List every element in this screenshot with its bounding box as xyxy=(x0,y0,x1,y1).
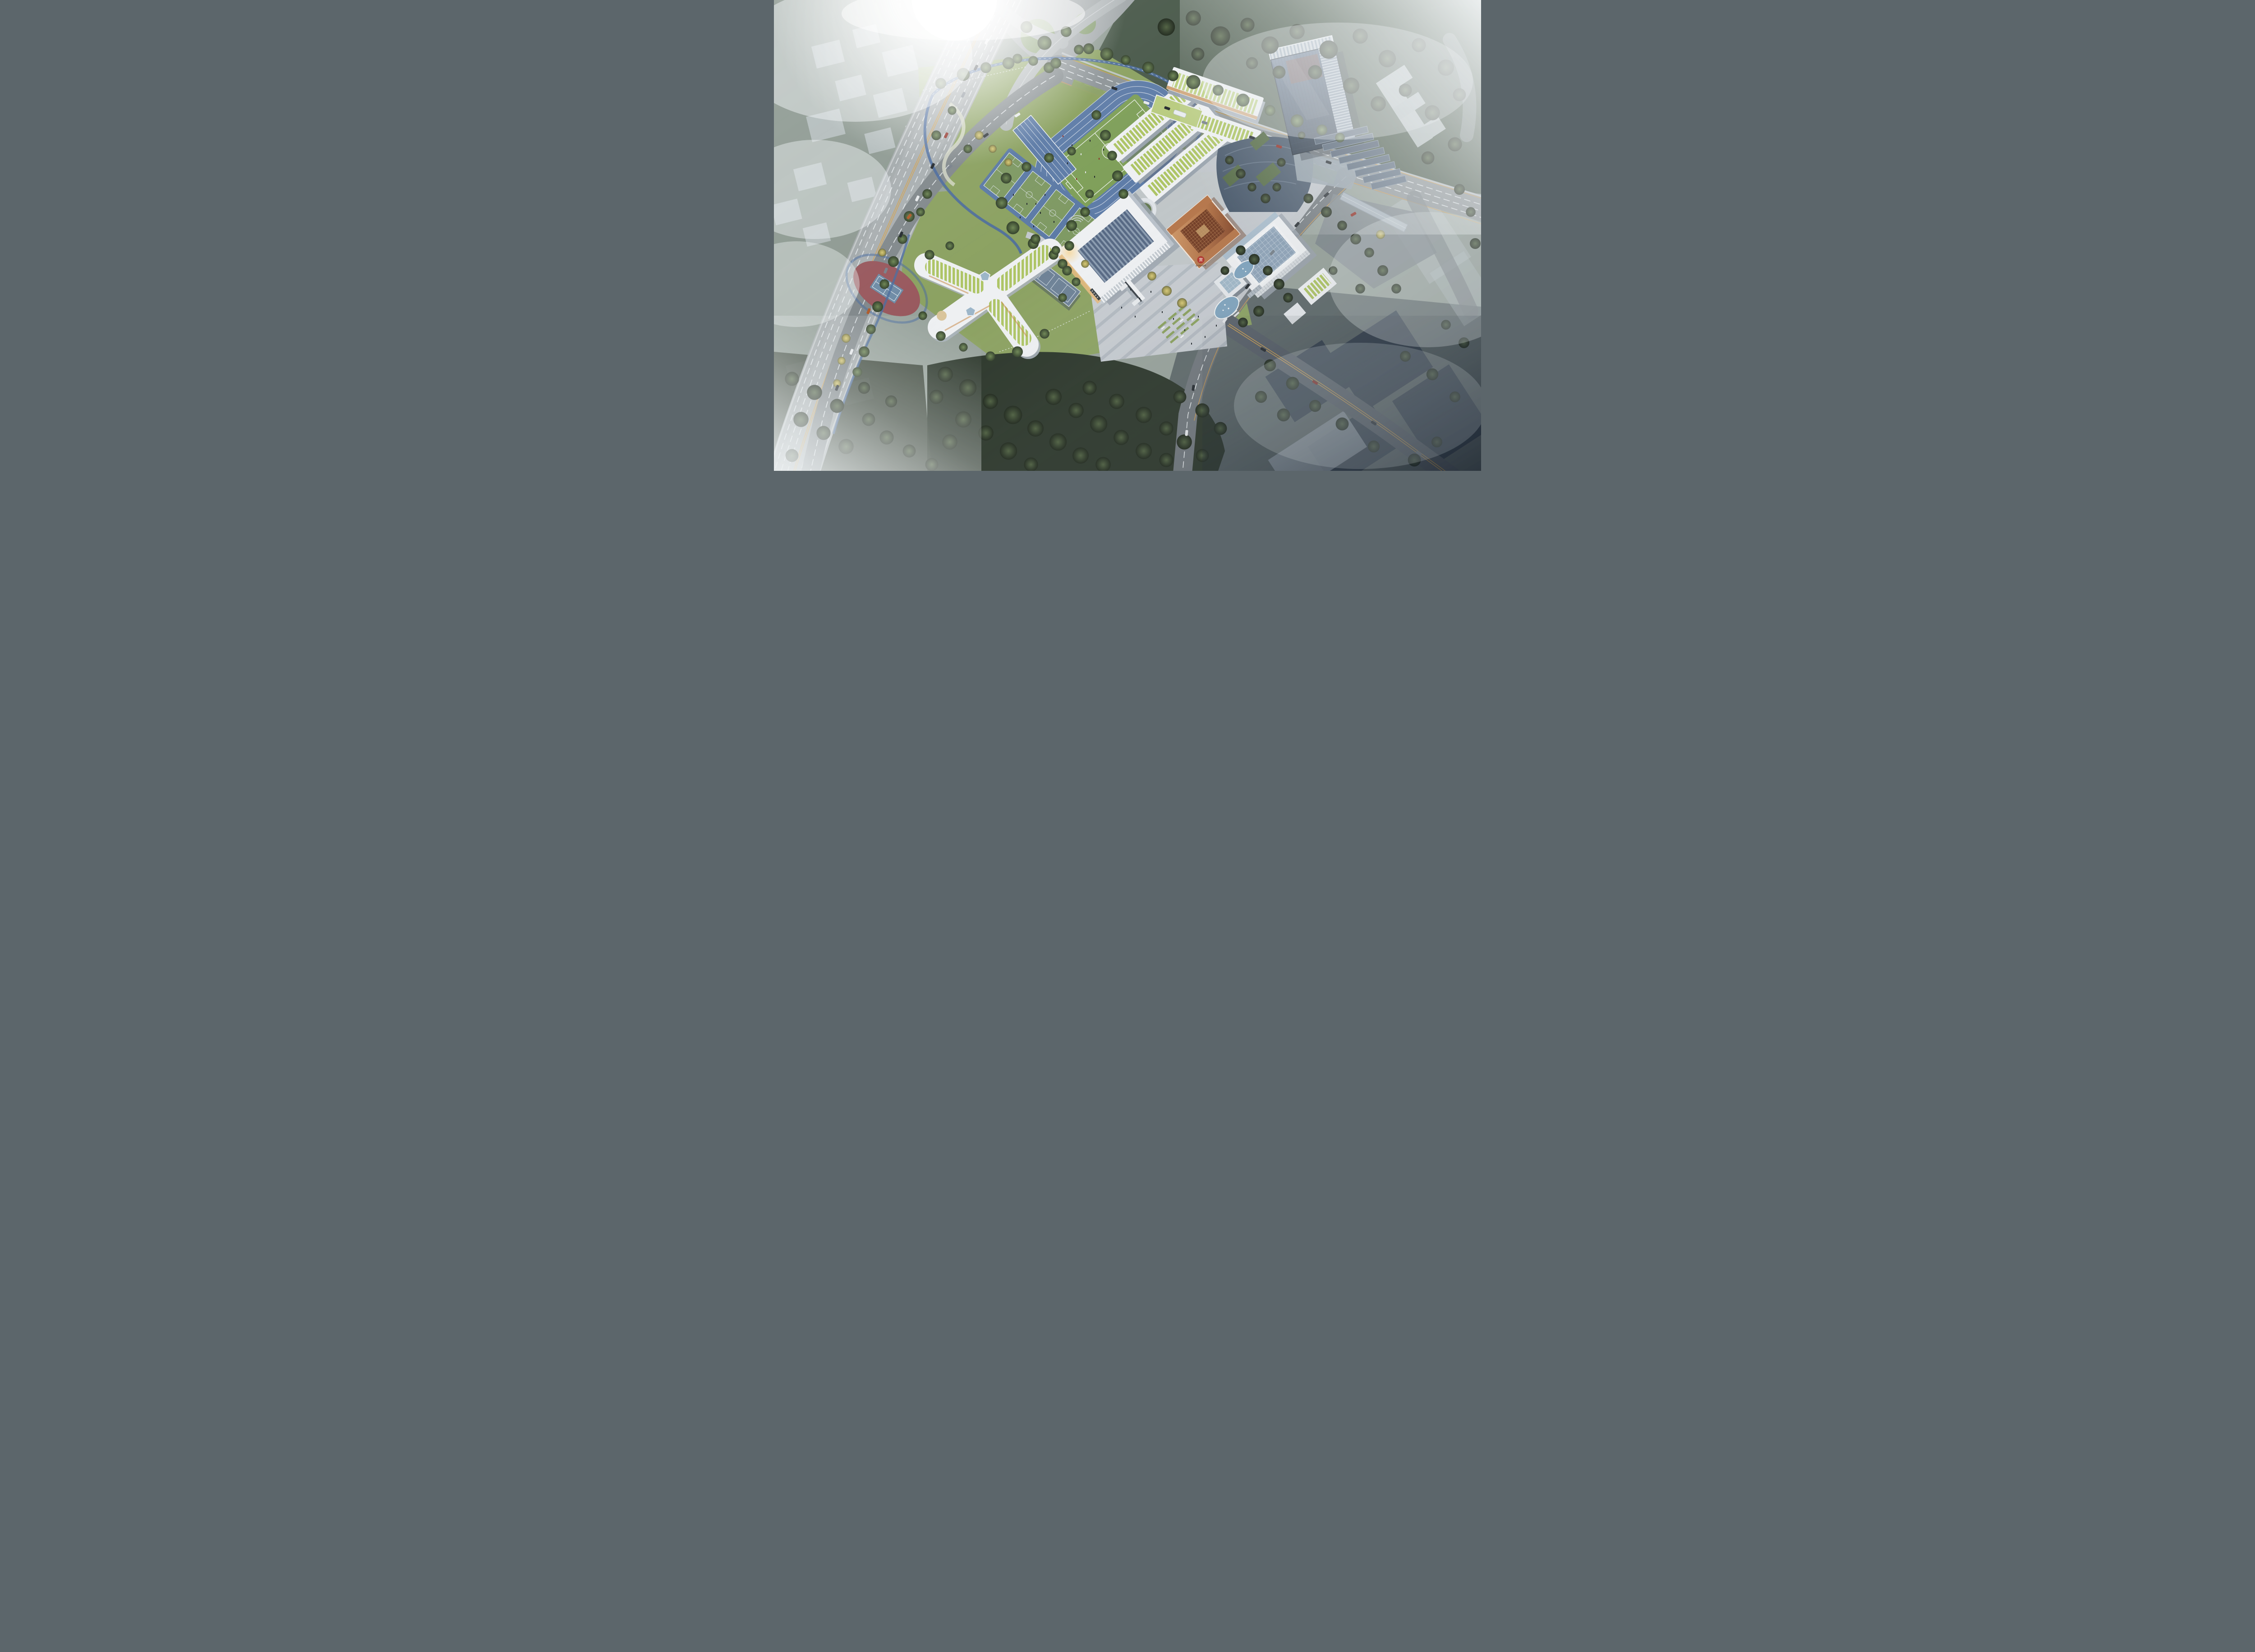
aerial-render-stage: 實 温州市实验中学 xyxy=(774,0,1481,471)
color-grade-overlay xyxy=(774,0,1481,471)
campus-aerial-render: 實 温州市实验中学 xyxy=(774,0,1481,471)
atmosphere xyxy=(774,0,1481,471)
